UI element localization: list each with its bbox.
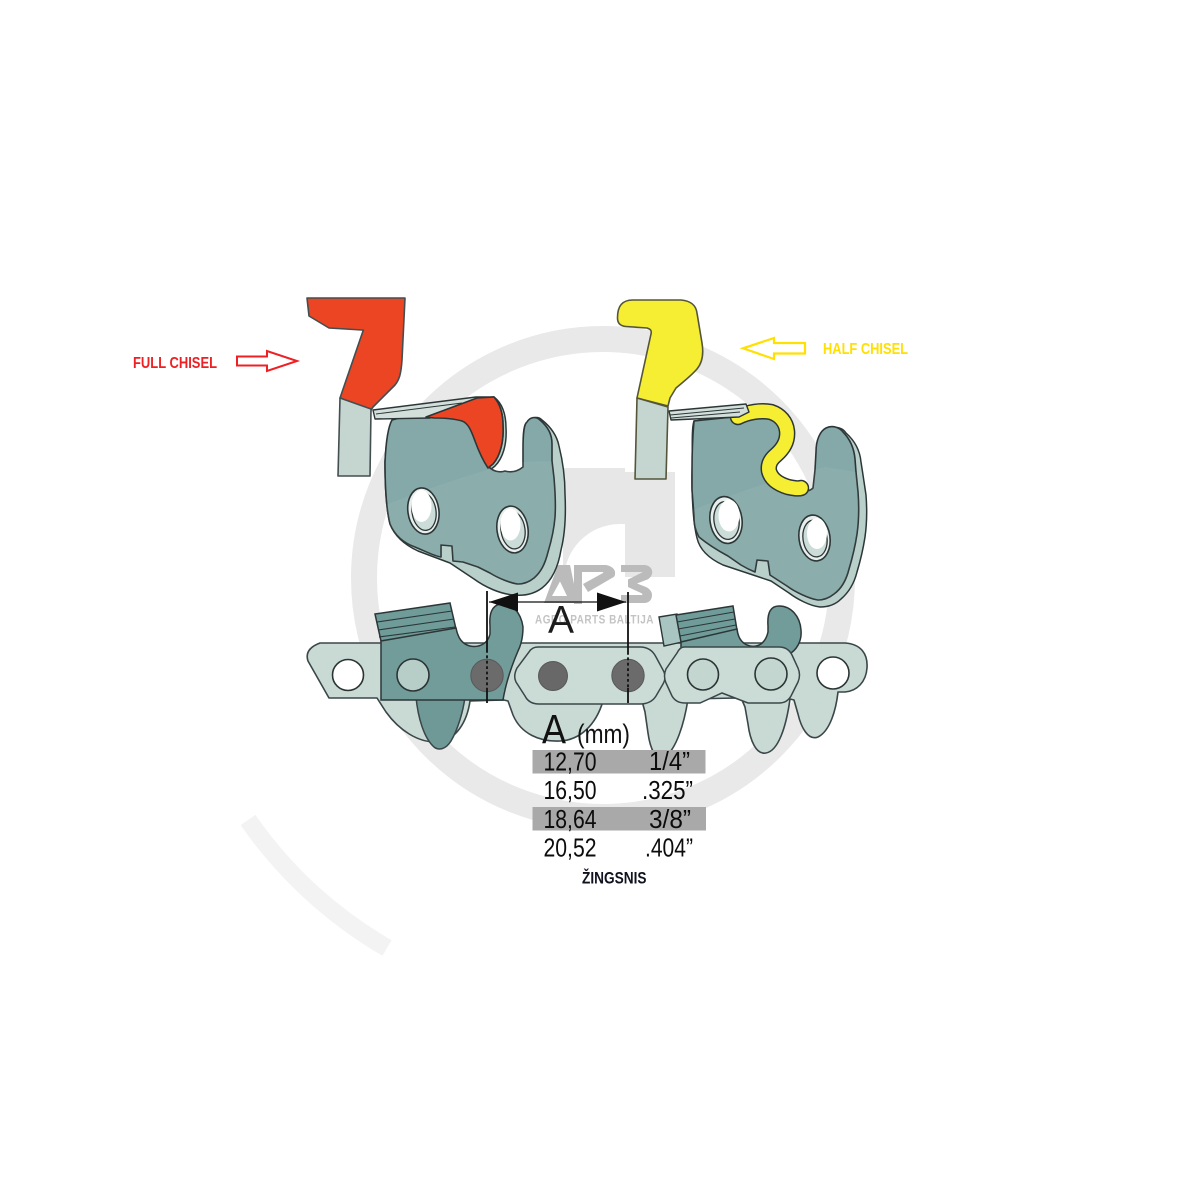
svg-text:FULL CHISEL: FULL CHISEL [133,355,217,372]
svg-text:(mm): (mm) [577,719,630,749]
svg-text:ŽINGSNIS: ŽINGSNIS [582,869,647,888]
svg-text:3/8”: 3/8” [649,806,691,834]
svg-text:A: A [542,706,567,752]
svg-text:20,52: 20,52 [544,835,597,863]
svg-text:1/4”: 1/4” [649,748,690,776]
svg-text:.325”: .325” [642,777,693,805]
svg-text:.404”: .404” [645,835,693,863]
svg-text:12,70: 12,70 [544,749,597,777]
svg-text:18,64: 18,64 [544,806,597,834]
svg-text:16,50: 16,50 [544,777,597,805]
svg-text:A: A [548,599,574,642]
svg-text:HALF CHISEL: HALF CHISEL [823,341,908,358]
